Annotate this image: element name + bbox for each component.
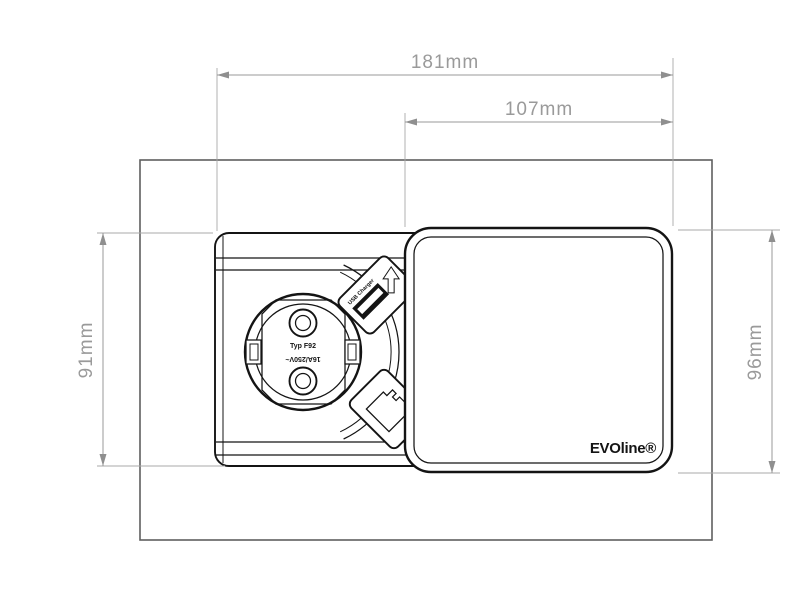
arrowhead-right [661, 119, 673, 126]
arrowhead-top [100, 233, 107, 245]
arrowhead-left [405, 119, 417, 126]
socket-rating-label: 16A/250V~ [285, 355, 320, 362]
arrowhead-left [217, 72, 229, 79]
arrowhead-bottom [769, 461, 776, 473]
arrowhead-right [661, 72, 673, 79]
brand-logo: EVOline® [590, 440, 656, 457]
earth-clip-right [345, 340, 360, 364]
dim-total-width-label: 181mm [411, 52, 479, 73]
drawing-canvas: Typ F92 16A/250V~ USB Charger EVOline® [0, 0, 800, 600]
arrowhead-bottom [100, 454, 107, 466]
lid: EVOline® [405, 228, 672, 472]
dimension-total-width: 181mm [217, 52, 673, 231]
dim-unit-height-label: 91mm [76, 322, 97, 379]
dim-lid-height-label: 96mm [745, 324, 766, 381]
technical-drawing: Typ F92 16A/250V~ USB Charger EVOline® [0, 0, 800, 600]
dimension-lid-height: 96mm [678, 230, 780, 473]
arrowhead-top [769, 230, 776, 242]
lid-outer-edge [405, 228, 672, 472]
socket-type-label: Typ F92 [290, 343, 316, 350]
earth-clip-left [246, 340, 261, 364]
dimension-lid-width: 107mm [405, 99, 673, 227]
dim-lid-width-label: 107mm [505, 99, 573, 120]
dimension-unit-height: 91mm [76, 233, 225, 466]
